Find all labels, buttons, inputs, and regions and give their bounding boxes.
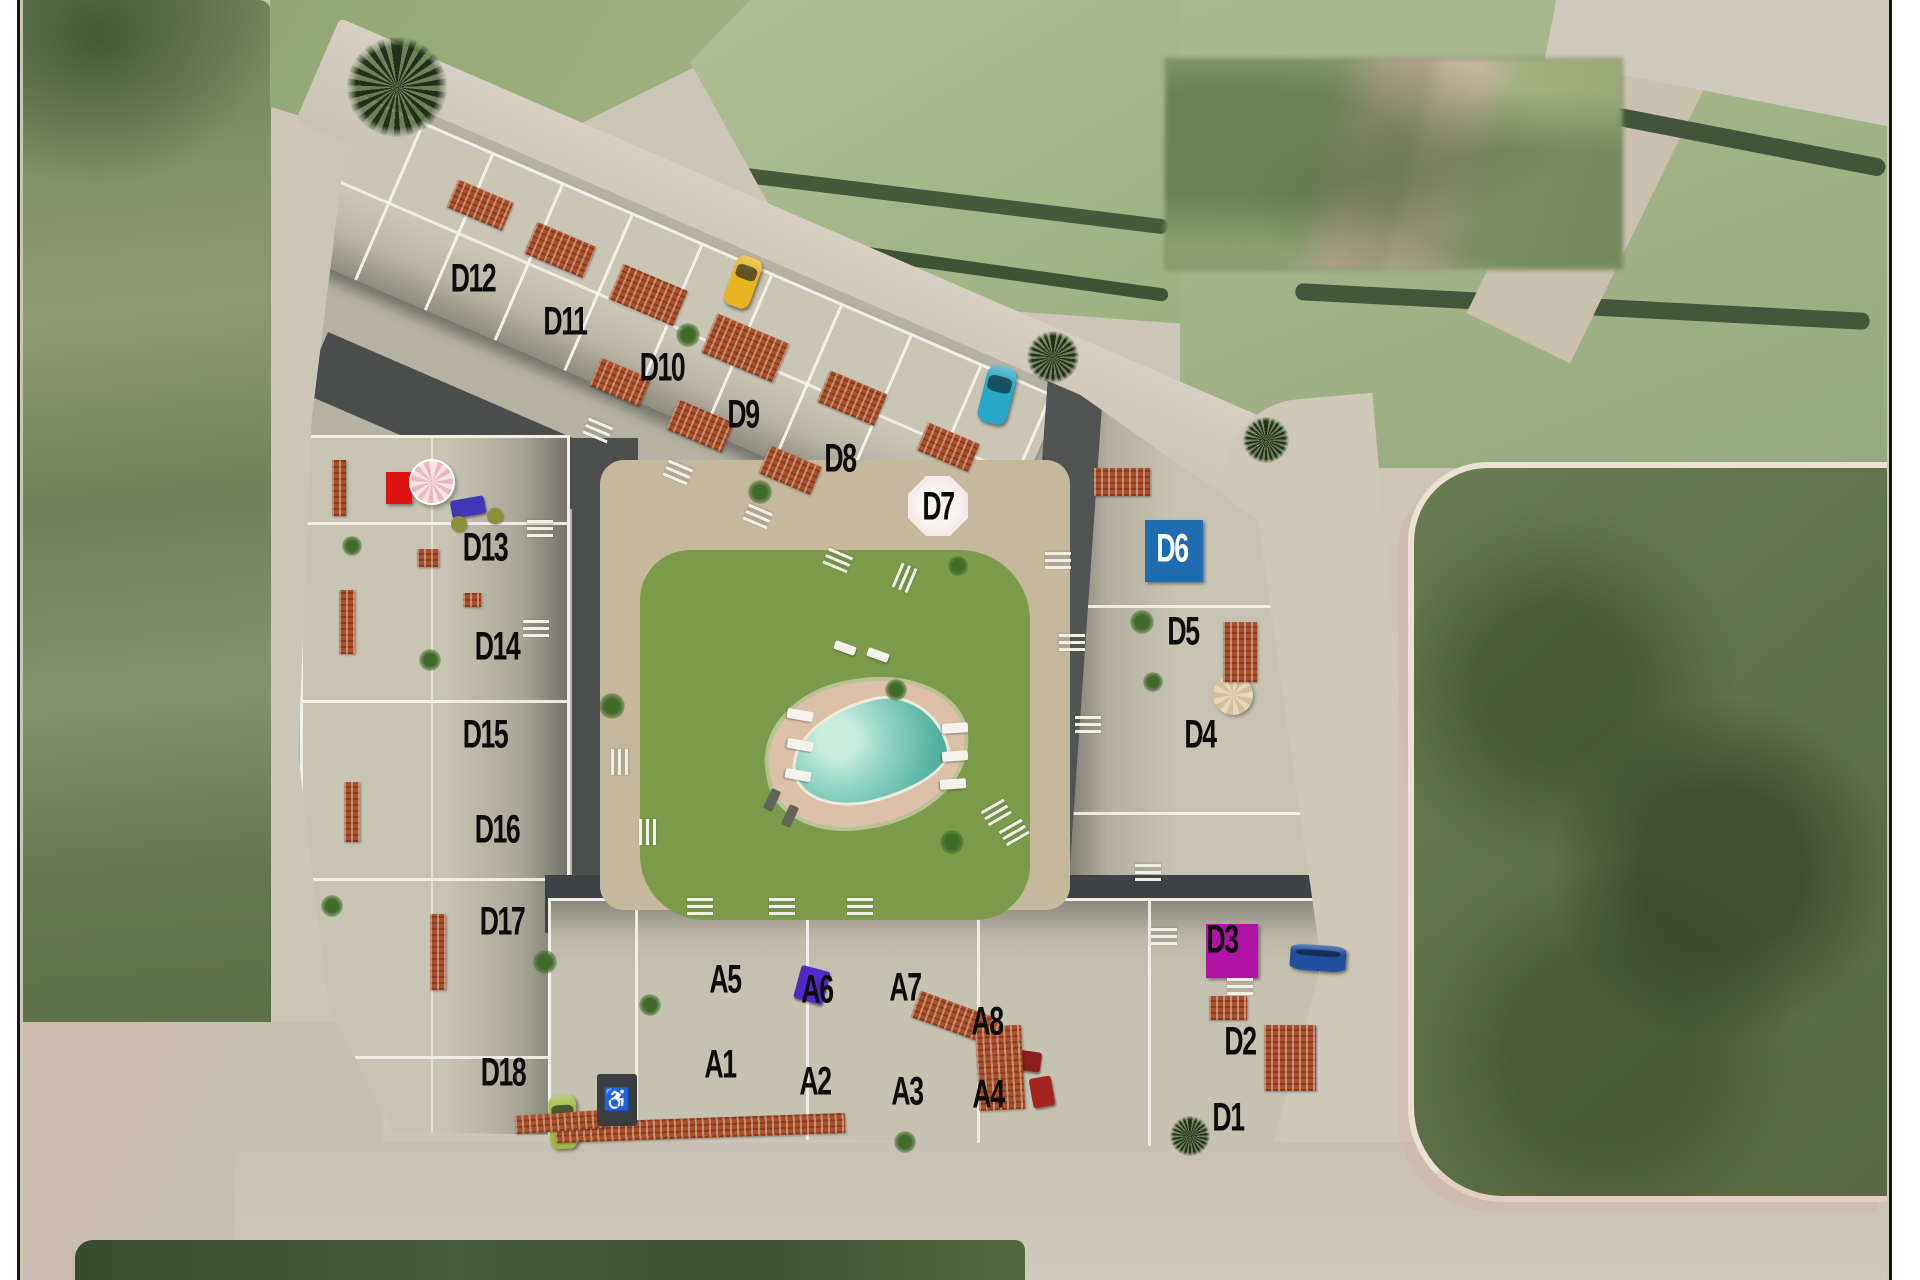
unit-label-d14: D14 [475, 627, 520, 667]
plant-feature [948, 556, 968, 576]
stairs-feature [1135, 863, 1161, 881]
unit-label-a1: A1 [704, 1045, 735, 1085]
stairs-feature [611, 749, 629, 775]
unit-label-a4: A4 [972, 1075, 1003, 1115]
lounger-feature [942, 722, 969, 734]
plant-feature [639, 994, 661, 1016]
unit-label-d3: D3 [1206, 920, 1237, 960]
stairs-feature [687, 897, 713, 915]
stairs-feature [1227, 977, 1253, 995]
stairs-feature [1059, 633, 1085, 651]
unit-label-d12: D12 [451, 259, 496, 299]
unit-label-d10: D10 [640, 348, 685, 388]
unit-label-d18: D18 [481, 1053, 526, 1093]
page-margin-right [1889, 0, 1920, 1280]
stairs-feature [639, 819, 657, 845]
lounger-feature [942, 750, 969, 762]
unit-label-d15: D15 [463, 715, 508, 755]
unit-label-d1: D1 [1212, 1098, 1243, 1138]
unit-label-d4: D4 [1184, 715, 1215, 755]
unit-label-d13: D13 [463, 528, 508, 568]
unit-label-a8: A8 [971, 1002, 1002, 1042]
stairs-feature [1151, 927, 1177, 945]
plant-feature [676, 323, 700, 347]
unit-label-a2: A2 [799, 1062, 830, 1102]
plant-feature [748, 480, 772, 504]
unit-label-d9: D9 [727, 395, 758, 435]
plant-feature [1143, 672, 1163, 692]
unit-label-a3: A3 [891, 1072, 922, 1112]
unit-label-d11: D11 [543, 302, 586, 342]
square-feature [386, 472, 412, 504]
unit-label-d6: D6 [1156, 529, 1187, 569]
badge-feature: ♿ [597, 1074, 637, 1126]
palm-feature [347, 37, 447, 137]
palm-feature [1170, 1116, 1210, 1156]
plant-feature [1130, 610, 1154, 634]
roof-feature [339, 590, 355, 654]
roof-feature [1223, 622, 1257, 682]
unit-label-d16: D16 [475, 810, 520, 850]
pouf-feature [487, 508, 503, 524]
roof-feature [344, 782, 360, 842]
unit-label-d5: D5 [1167, 612, 1198, 652]
umbrella-pink-feature [409, 459, 455, 505]
plant-feature [894, 1131, 916, 1153]
roof-feature [417, 549, 439, 567]
plant-feature [321, 895, 343, 917]
page-margin-left [0, 0, 20, 1280]
stairs-feature [847, 897, 873, 915]
roof-feature [1209, 996, 1247, 1020]
stairs-feature [769, 897, 795, 915]
roof-feature [1094, 468, 1150, 496]
stairs-feature [1045, 551, 1071, 569]
palm-feature [1243, 417, 1289, 463]
stairs-feature [1075, 715, 1101, 733]
plant-feature [419, 649, 441, 671]
label-layer: D12D11D10D9D8D7D6D5D4D13D14D15D16D17D18A… [0, 0, 1920, 1280]
unit-label-d2: D2 [1224, 1022, 1255, 1062]
palm-feature [1027, 331, 1079, 383]
unit-label-d17: D17 [480, 902, 525, 942]
unit-label-a6: A6 [801, 970, 832, 1010]
unit-label-a7: A7 [889, 968, 920, 1008]
plant-feature [533, 950, 557, 974]
stairs-feature [527, 519, 553, 537]
site-plan-page: ♿ D12D11D10D9D8D7D6D5D4D13D14D15D16D17D1… [0, 0, 1920, 1280]
unit-label-d7: D7 [922, 487, 953, 527]
unit-label-d8: D8 [824, 439, 855, 479]
plant-feature [342, 536, 362, 556]
plant-feature [599, 693, 625, 719]
car-feature [1289, 943, 1347, 973]
roof-feature [463, 593, 481, 607]
roof-feature [430, 914, 446, 990]
lounger-feature [940, 778, 967, 790]
stairs-feature [523, 619, 549, 637]
plant-feature [940, 830, 964, 854]
roof-feature [332, 460, 346, 516]
plant-feature [885, 679, 907, 701]
roof-feature [1264, 1025, 1316, 1091]
unit-label-a5: A5 [709, 960, 740, 1000]
